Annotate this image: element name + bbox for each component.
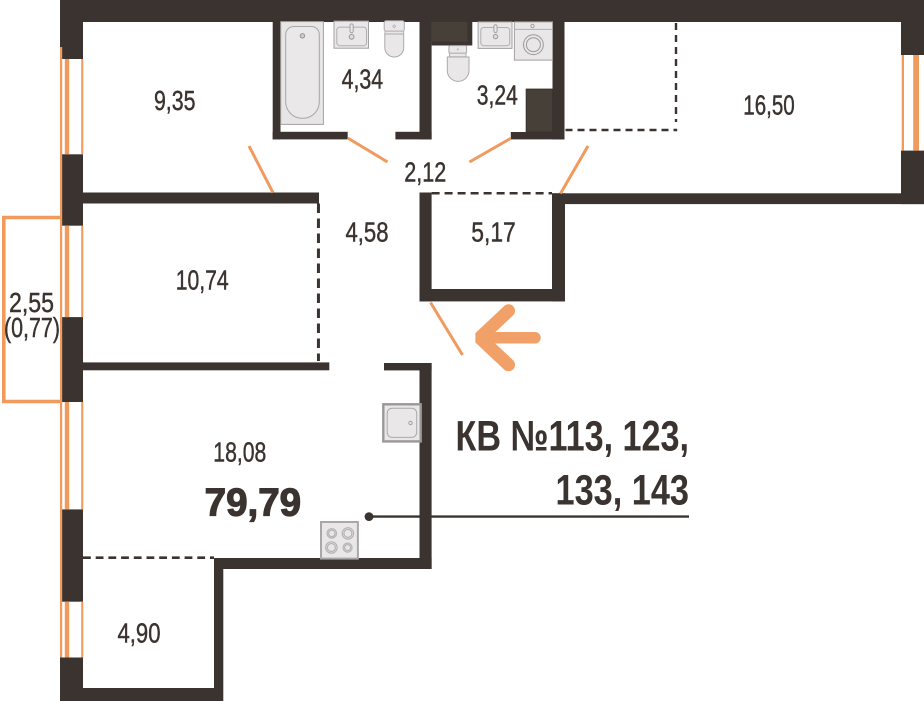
svg-text:4,90: 4,90 (118, 618, 161, 649)
svg-text:5,17: 5,17 (471, 216, 516, 247)
svg-text:КВ №113, 123,: КВ №113, 123, (456, 413, 690, 461)
svg-text:18,08: 18,08 (213, 437, 266, 468)
svg-text:79,79: 79,79 (205, 481, 302, 524)
svg-text:2,12: 2,12 (404, 157, 446, 188)
svg-text:16,50: 16,50 (743, 90, 795, 121)
svg-text:133, 143: 133, 143 (556, 466, 690, 514)
svg-text:10,74: 10,74 (176, 265, 229, 296)
svg-text:(0,77): (0,77) (4, 312, 60, 343)
svg-text:3,24: 3,24 (477, 80, 518, 111)
svg-text:4,34: 4,34 (342, 63, 384, 94)
svg-text:4,58: 4,58 (346, 216, 389, 247)
svg-text:9,35: 9,35 (154, 85, 196, 116)
